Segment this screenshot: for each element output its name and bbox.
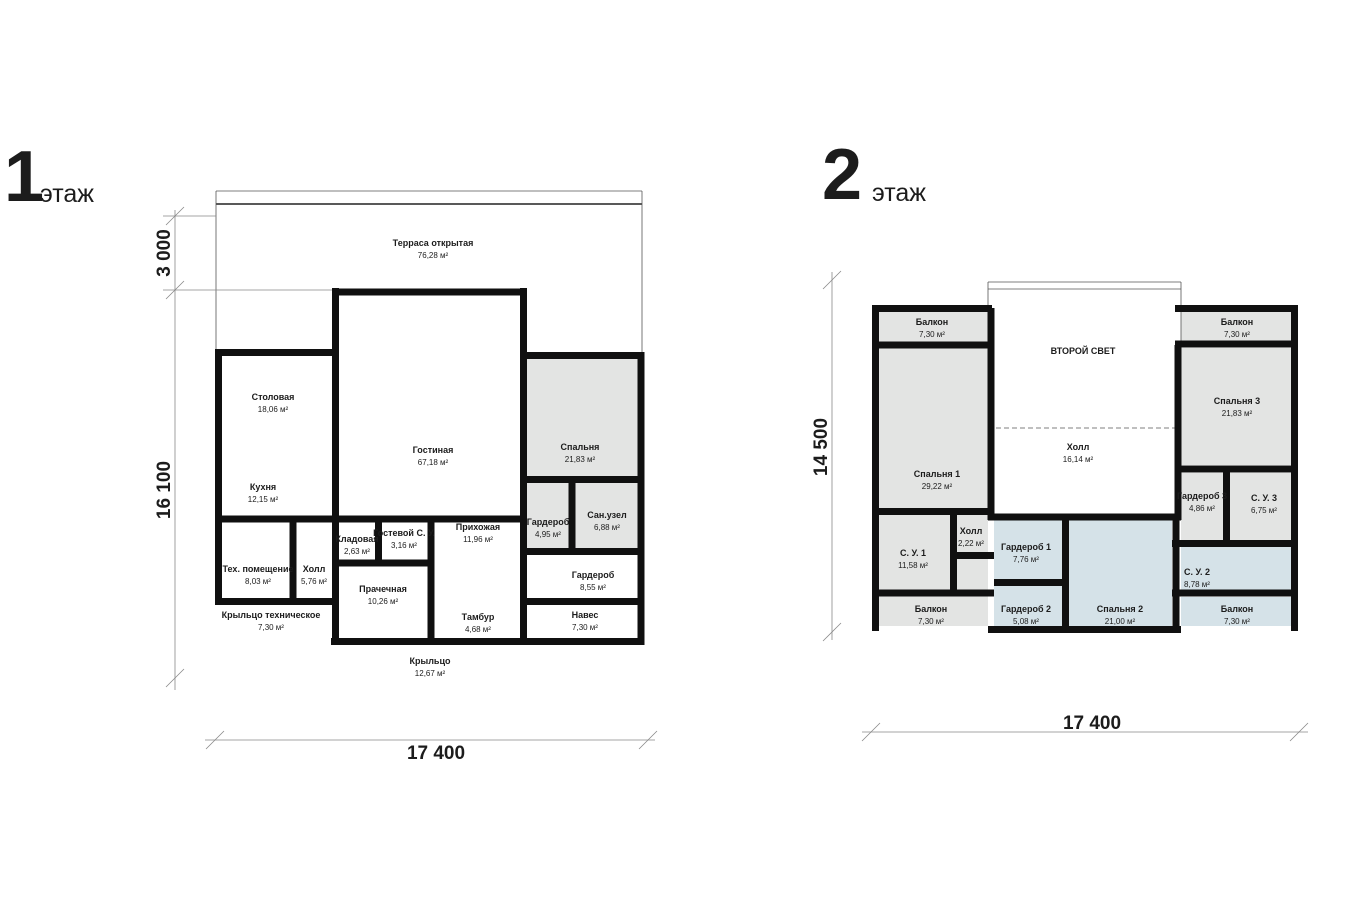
- svg-text:5,08 м²: 5,08 м²: [1013, 617, 1039, 626]
- svg-text:Крыльцо: Крыльцо: [410, 656, 451, 666]
- svg-text:3,16 м²: 3,16 м²: [391, 541, 417, 550]
- svg-text:С. У. 2: С. У. 2: [1184, 567, 1210, 577]
- svg-text:Балкон: Балкон: [1221, 604, 1254, 614]
- svg-text:Спальня: Спальня: [561, 442, 600, 452]
- svg-text:16,14 м²: 16,14 м²: [1063, 455, 1094, 464]
- svg-text:5,76 м²: 5,76 м²: [301, 577, 327, 586]
- svg-text:Балкон: Балкон: [916, 317, 949, 327]
- svg-text:2,22 м²: 2,22 м²: [958, 539, 984, 548]
- svg-text:29,22 м²: 29,22 м²: [922, 482, 953, 491]
- svg-text:Балкон: Балкон: [1221, 317, 1254, 327]
- svg-text:этаж: этаж: [40, 180, 94, 208]
- svg-text:6,75 м²: 6,75 м²: [1251, 506, 1277, 515]
- svg-text:Гостиная: Гостиная: [413, 445, 454, 455]
- svg-text:Столовая: Столовая: [252, 392, 295, 402]
- svg-text:21,83 м²: 21,83 м²: [1222, 409, 1253, 418]
- svg-text:12,67 м²: 12,67 м²: [415, 669, 446, 678]
- svg-text:Гостевой С. У.: Гостевой С. У.: [373, 528, 435, 538]
- svg-text:7,30 м²: 7,30 м²: [918, 617, 944, 626]
- svg-text:7,30 м²: 7,30 м²: [258, 623, 284, 632]
- svg-text:1: 1: [4, 137, 44, 217]
- svg-text:12,15 м²: 12,15 м²: [248, 495, 279, 504]
- svg-text:2: 2: [822, 135, 862, 215]
- svg-text:7,76 м²: 7,76 м²: [1013, 555, 1039, 564]
- svg-text:67,18 м²: 67,18 м²: [418, 458, 449, 467]
- svg-text:17 400: 17 400: [407, 743, 465, 764]
- svg-text:4,86 м²: 4,86 м²: [1189, 504, 1215, 513]
- svg-text:21,00 м²: 21,00 м²: [1105, 617, 1136, 626]
- svg-text:6,88 м²: 6,88 м²: [594, 523, 620, 532]
- svg-text:ВТОРОЙ СВЕТ: ВТОРОЙ СВЕТ: [1051, 345, 1116, 356]
- svg-text:Гардероб: Гардероб: [527, 517, 570, 527]
- svg-text:11,96 м²: 11,96 м²: [463, 535, 493, 544]
- svg-text:Тех. помещение: Тех. помещение: [223, 564, 294, 574]
- svg-text:21,83 м²: 21,83 м²: [565, 455, 596, 464]
- svg-text:17 400: 17 400: [1063, 713, 1121, 734]
- svg-text:Прачечная: Прачечная: [359, 584, 407, 594]
- svg-text:С. У. 1: С. У. 1: [900, 548, 926, 558]
- svg-text:этаж: этаж: [872, 179, 926, 207]
- svg-text:Кухня: Кухня: [250, 482, 276, 492]
- svg-text:С. У. 3: С. У. 3: [1251, 493, 1277, 503]
- svg-text:Сан.узел: Сан.узел: [587, 510, 627, 520]
- svg-text:Терраса открытая: Терраса открытая: [393, 238, 474, 248]
- svg-text:Тамбур: Тамбур: [462, 612, 495, 622]
- svg-text:Крыльцо техническое: Крыльцо техническое: [222, 610, 321, 620]
- svg-text:7,30 м²: 7,30 м²: [572, 623, 598, 632]
- svg-text:10,26 м²: 10,26 м²: [368, 597, 399, 606]
- svg-text:8,55 м²: 8,55 м²: [580, 583, 606, 592]
- svg-text:Балкон: Балкон: [915, 604, 948, 614]
- svg-text:8,03 м²: 8,03 м²: [245, 577, 271, 586]
- svg-text:Холл: Холл: [303, 564, 326, 574]
- svg-text:18,06 м²: 18,06 м²: [258, 405, 289, 414]
- svg-text:Спальня 2: Спальня 2: [1097, 604, 1143, 614]
- svg-text:Прихожая: Прихожая: [456, 522, 500, 532]
- svg-text:Гардероб 2: Гардероб 2: [1001, 604, 1051, 614]
- svg-text:Навес: Навес: [572, 610, 599, 620]
- svg-text:Спальня 1: Спальня 1: [914, 469, 960, 479]
- svg-text:4,68 м²: 4,68 м²: [465, 625, 491, 634]
- svg-text:7,30 м²: 7,30 м²: [1224, 617, 1250, 626]
- svg-text:Гардероб: Гардероб: [572, 570, 615, 580]
- svg-text:Гардероб 3: Гардероб 3: [1177, 491, 1227, 501]
- svg-text:Холл: Холл: [1067, 442, 1090, 452]
- svg-text:8,78 м²: 8,78 м²: [1184, 580, 1210, 589]
- svg-text:Спальня 3: Спальня 3: [1214, 396, 1260, 406]
- svg-text:Гардероб 1: Гардероб 1: [1001, 542, 1051, 552]
- svg-text:11,58 м²: 11,58 м²: [898, 561, 928, 570]
- svg-text:4,95 м²: 4,95 м²: [535, 530, 561, 539]
- svg-text:7,30 м²: 7,30 м²: [1224, 330, 1250, 339]
- svg-text:7,30 м²: 7,30 м²: [919, 330, 945, 339]
- svg-text:2,63 м²: 2,63 м²: [344, 547, 370, 556]
- svg-text:Холл: Холл: [960, 526, 983, 536]
- svg-text:76,28 м²: 76,28 м²: [418, 251, 449, 260]
- svg-text:14 500: 14 500: [811, 418, 832, 476]
- svg-text:16 100: 16 100: [154, 461, 175, 519]
- svg-text:3 000: 3 000: [154, 229, 175, 277]
